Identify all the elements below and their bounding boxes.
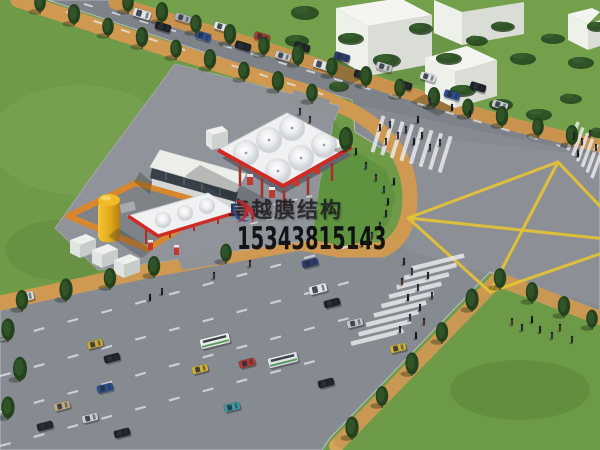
scene-svg xyxy=(0,0,600,450)
lawn-mottle xyxy=(450,360,590,420)
fuel-tank-highlight xyxy=(101,196,111,201)
architectural-rendering-canvas: 卓越膜结构 15343815143 xyxy=(0,0,600,450)
